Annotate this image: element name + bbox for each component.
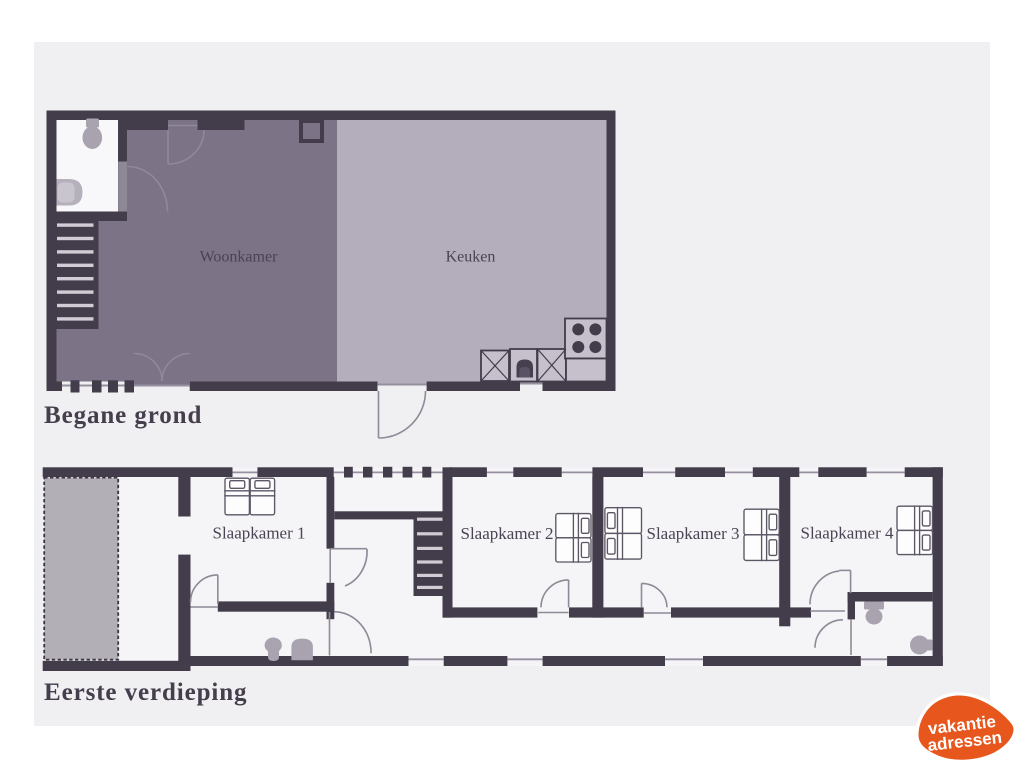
svg-text:Woonkamer: Woonkamer (200, 249, 278, 266)
svg-text:Begane grond: Begane grond (44, 402, 202, 429)
svg-text:Slaapkamer 3: Slaapkamer 3 (647, 524, 740, 543)
svg-text:Slaapkamer 4: Slaapkamer 4 (801, 524, 894, 543)
svg-text:Eerste verdieping: Eerste verdieping (44, 679, 247, 706)
svg-text:Keuken: Keuken (446, 249, 496, 266)
svg-text:Slaapkamer 2: Slaapkamer 2 (461, 524, 554, 543)
svg-text:Slaapkamer 1: Slaapkamer 1 (213, 524, 306, 543)
